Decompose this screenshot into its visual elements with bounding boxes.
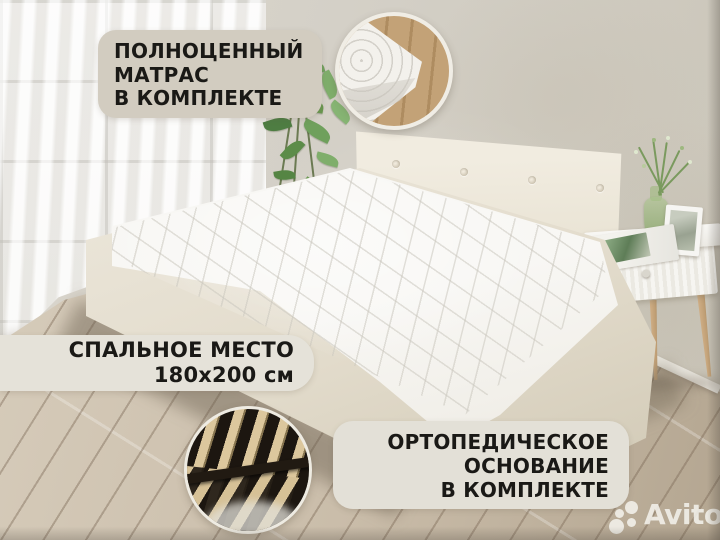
inset-circle-slat-base-closeup — [184, 406, 312, 534]
avito-logo-icon — [625, 501, 638, 514]
avito-watermark: Avito — [606, 497, 718, 537]
flower-sprigs — [616, 136, 692, 200]
badge-line: МАТРАС — [114, 64, 322, 88]
badge-line: СПАЛЬНОЕ МЕСТО — [0, 338, 294, 363]
headboard-tuft-button — [392, 160, 400, 168]
badge-line: 180x200 см — [0, 363, 294, 388]
badge-line: В КОМПЛЕКТЕ — [114, 87, 322, 111]
avito-logo-icon — [615, 509, 624, 518]
product-photo-bed-listing: ПОЛНОЦЕННЫЙ МАТРАС В КОМПЛЕКТЕ СПАЛЬНОЕ … — [0, 0, 720, 540]
drawer-knob — [642, 269, 651, 278]
badge-mattress-included: ПОЛНОЦЕННЫЙ МАТРАС В КОМПЛЕКТЕ — [98, 30, 322, 118]
avito-logo-icon — [609, 519, 624, 534]
headboard-tuft-button — [528, 176, 536, 184]
badge-orthopedic-base: ОРТОПЕДИЧЕСКОЕ ОСНОВАНИЕ В КОМПЛЕКТЕ — [333, 421, 629, 509]
avito-watermark-text: Avito — [644, 498, 720, 531]
badge-line: В КОМПЛЕКТЕ — [333, 478, 609, 502]
badge-sleeping-size: СПАЛЬНОЕ МЕСТО 180x200 см — [0, 335, 314, 391]
badge-line: ОРТОПЕДИЧЕСКОЕ — [333, 430, 609, 454]
inset-circle-mattress-closeup — [335, 12, 453, 130]
headboard-tuft-button — [596, 184, 604, 192]
badge-line: ОСНОВАНИЕ — [333, 454, 609, 478]
headboard-tuft-button — [460, 168, 468, 176]
avito-logo-icon — [627, 518, 636, 527]
badge-line: ПОЛНОЦЕННЫЙ — [114, 40, 322, 64]
